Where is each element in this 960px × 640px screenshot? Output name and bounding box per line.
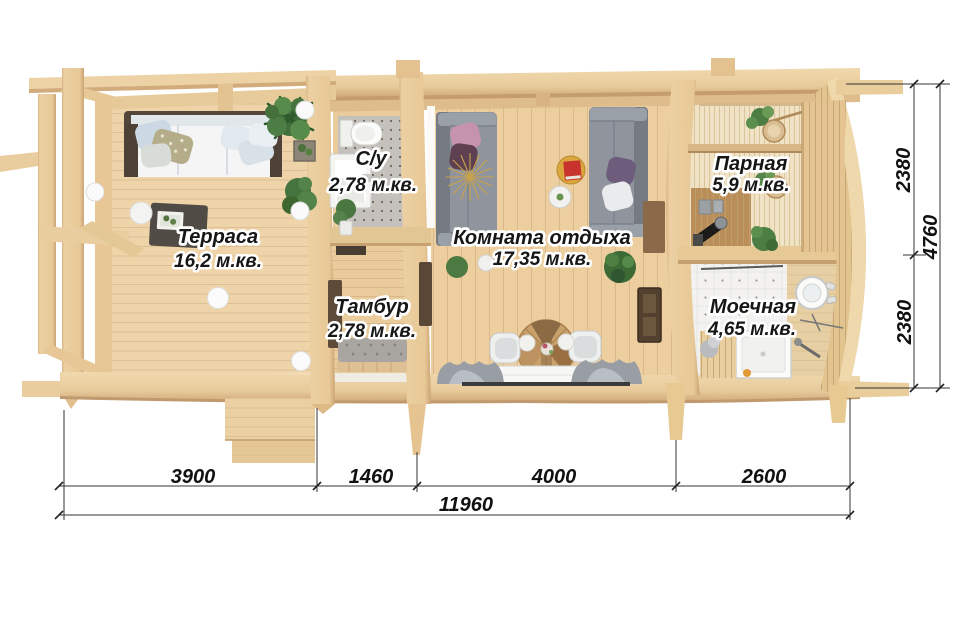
svg-text:3900: 3900 — [171, 466, 216, 488]
svg-text:С/у: С/у — [355, 148, 387, 170]
svg-text:Комната отдыха: Комната отдыха — [453, 227, 630, 249]
svg-text:Терраса: Терраса — [178, 226, 258, 248]
svg-text:11960: 11960 — [439, 494, 493, 516]
svg-text:Моечная: Моечная — [710, 296, 796, 318]
svg-text:1460: 1460 — [349, 466, 394, 488]
svg-text:5,9 м.кв.: 5,9 м.кв. — [712, 175, 789, 196]
svg-text:4000: 4000 — [531, 466, 577, 488]
svg-text:2380: 2380 — [894, 300, 916, 346]
svg-text:4,65 м.кв.: 4,65 м.кв. — [707, 319, 796, 340]
svg-text:2380: 2380 — [893, 148, 915, 194]
svg-text:17,35 м.кв.: 17,35 м.кв. — [493, 249, 592, 270]
svg-text:2,78 м.кв.: 2,78 м.кв. — [328, 175, 417, 196]
svg-text:2600: 2600 — [741, 466, 787, 488]
svg-text:2,78 м.кв.: 2,78 м.кв. — [327, 321, 416, 342]
svg-text:Парная: Парная — [715, 153, 788, 175]
svg-text:4760: 4760 — [920, 215, 942, 261]
svg-text:Тамбур: Тамбур — [335, 296, 408, 318]
svg-text:16,2 м.кв.: 16,2 м.кв. — [174, 251, 262, 272]
